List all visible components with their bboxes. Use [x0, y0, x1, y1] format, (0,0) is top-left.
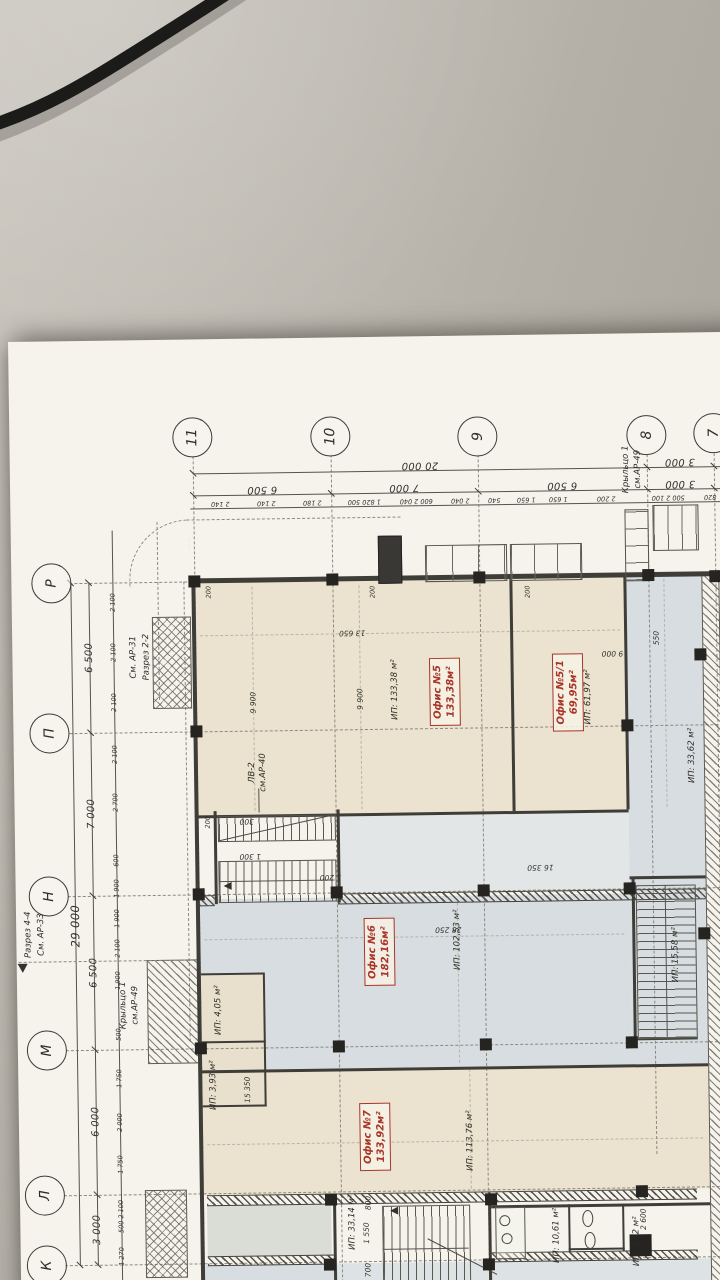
room-area: ИП: 113,76 м²	[465, 1110, 476, 1171]
column	[698, 927, 710, 939]
dim-left-small: 1 900	[113, 879, 121, 898]
column	[333, 1040, 345, 1052]
axis-bubble-R: Р	[31, 563, 72, 604]
office-name: Офис №6	[367, 925, 380, 979]
column	[331, 886, 343, 898]
wc-fixture	[582, 1210, 593, 1227]
dim-inner: 9 900	[355, 688, 364, 710]
entrance-steps	[510, 543, 583, 581]
axis-bubble-K: К	[27, 1245, 68, 1280]
porch-note: Крыльцо 1	[118, 982, 129, 1030]
column	[325, 1193, 337, 1205]
column	[642, 569, 654, 581]
office-6-label: Офис №6 182,16м²	[364, 918, 396, 986]
dim-top: 20 000	[401, 460, 438, 472]
dim-left-overall: 29 000	[68, 905, 83, 948]
office-name: Офис №5	[432, 665, 445, 719]
office-name: Офис №7	[362, 1110, 375, 1164]
axis-label: П	[41, 728, 57, 739]
axis-label: Р	[43, 579, 59, 588]
dim-inner: 1 300	[239, 852, 261, 861]
room-area: ИП: 3,93 м²	[208, 1060, 219, 1110]
axis-label: Л	[37, 1190, 53, 1201]
ref-note: См. АР-31	[128, 636, 139, 679]
dim-top: 6 500	[547, 480, 577, 491]
dim-left-small: 2 700	[111, 793, 119, 812]
dim-offset: 200	[204, 586, 212, 599]
dim-top-small: 2 180	[303, 499, 322, 507]
column	[188, 575, 200, 587]
porch-bottom-left	[145, 1190, 188, 1279]
axis-label: М	[39, 1044, 55, 1056]
section-note-2-2: Разрез 2-2	[141, 634, 152, 681]
office-7-label: Офис №7 133,92м²	[359, 1103, 391, 1171]
dim-inner: 550	[652, 631, 661, 645]
dim-inner: 9 900	[248, 692, 257, 714]
dim-top: 3 000	[665, 478, 695, 489]
entrance-shaft	[378, 536, 403, 584]
axis-bubble-L: Л	[25, 1175, 66, 1216]
axis-bubble-9: 9	[457, 416, 498, 457]
room-area: ИП: 15,58 м²	[670, 927, 681, 982]
column	[326, 573, 338, 585]
column	[694, 648, 706, 660]
dim-inner: 28 250	[435, 925, 461, 934]
dim-left-small: 2 100	[111, 745, 119, 764]
office-area: 133,38м²	[445, 666, 458, 717]
dim-left-small: 1 900	[113, 909, 121, 928]
dim-inner: 13 650	[339, 629, 365, 638]
dim-offset: 200	[204, 816, 212, 829]
office-7-floor	[201, 1063, 710, 1195]
column	[478, 884, 490, 896]
room-area: ИП: 133,38 м²	[389, 659, 400, 720]
dim-left-small: 1 750	[115, 1069, 123, 1088]
shaft	[495, 1207, 526, 1259]
room-area: ИП: 33,62 м²	[686, 728, 697, 783]
dim-top: 3 000	[665, 456, 695, 467]
dim-top-small: 1 650	[549, 495, 568, 503]
column	[626, 1036, 638, 1048]
dim-left-small: 1 750	[116, 1155, 124, 1174]
dim-left-small: 2 000	[116, 1113, 124, 1132]
dim-top-small: 1 650	[517, 496, 536, 504]
column	[636, 1185, 648, 1197]
axis-label: 8	[638, 431, 654, 440]
stair-bottom-arrow	[386, 1207, 398, 1215]
dim-top: 6 500	[247, 484, 277, 495]
axis-bubble-M: М	[27, 1030, 68, 1071]
shaft-circle	[499, 1215, 510, 1226]
dim-top-small: 2 040	[451, 497, 470, 505]
column	[709, 570, 720, 582]
wall-band	[208, 1255, 336, 1267]
porch-left	[147, 959, 200, 1064]
drawing-sheet: 11 10 9 8 7 Р П Н М Л К 20 000 3 000 6 5…	[8, 330, 720, 1280]
office-5-1-label: Офис №5/1 69,95м²	[552, 653, 584, 732]
wall-wc	[568, 1204, 571, 1252]
axis-label: К	[39, 1260, 55, 1270]
dim-inner: 1 200	[320, 873, 342, 882]
dim-top-small: 820	[704, 493, 717, 501]
stair-note-ref: см.АР-40	[258, 753, 269, 792]
dim-top-small: 1 820 500	[348, 498, 381, 506]
dim-left: 7 000	[86, 799, 97, 829]
room-area: ИП: 102,53 м²	[452, 909, 463, 970]
photo-of-floor-plan: 11 10 9 8 7 Р П Н М Л К 20 000 3 000 6 5…	[0, 0, 720, 1280]
axis-label: 11	[184, 428, 200, 446]
column	[195, 1042, 207, 1054]
column	[193, 888, 205, 900]
dim-offset: 200	[368, 586, 376, 599]
office-area: 69,95м²	[568, 670, 581, 714]
room-area: ИП: 61,97 м²	[583, 669, 594, 724]
column	[483, 1258, 495, 1270]
room-area: ИП: 4,05 м²	[213, 985, 224, 1035]
axis-label: 7	[705, 429, 720, 438]
column	[190, 725, 202, 737]
axis-bubble-10: 10	[310, 416, 351, 457]
porch-note-top-ref: см.АР-49	[633, 450, 644, 489]
hall-floor	[340, 812, 630, 894]
dim-left-small: 2 100	[109, 643, 117, 662]
wc-fixture	[584, 1232, 595, 1249]
column	[473, 571, 485, 583]
stair-lobby-floor	[207, 1204, 332, 1258]
dim-top-small: 2 140	[257, 499, 276, 507]
axis-label: 10	[322, 427, 338, 445]
ref-note: См. АР-33	[36, 913, 47, 956]
dim-left-small: 1 270	[118, 1247, 126, 1266]
dim-line-left-2	[88, 583, 99, 1265]
dim-left-small: 500	[115, 1028, 123, 1041]
ramp-top-left	[152, 616, 192, 709]
column	[485, 1193, 497, 1205]
dim-top: 7 000	[389, 482, 419, 493]
axis-label: Н	[41, 891, 57, 902]
stair-note: ЛВ-2	[247, 762, 257, 783]
wall-wc	[622, 1203, 625, 1251]
dim-inner: 800	[363, 1196, 372, 1210]
dim-inner: 2 600	[639, 1208, 648, 1230]
dim-inner: 300	[239, 817, 253, 826]
dim-left: 6 000	[90, 1107, 101, 1137]
dim-left: 6 500	[84, 643, 95, 673]
column	[480, 1038, 492, 1050]
office-5-label: Офис №5 133,38м²	[429, 658, 461, 726]
dim-left-small: 500 2 100	[117, 1200, 125, 1233]
porch-dashed-line	[186, 517, 400, 521]
dim-top-small: 600 2 040	[400, 497, 433, 505]
office-name: Офис №5/1	[555, 660, 568, 725]
dim-inner: 15 350	[243, 1077, 252, 1103]
porch-top-right	[652, 504, 699, 551]
column	[624, 882, 636, 894]
dim-left-small: 600	[112, 854, 120, 867]
dim-top-small: 2 140	[211, 500, 230, 508]
dim-inner: 700	[363, 1263, 372, 1277]
dim-left: 3 000	[92, 1215, 103, 1245]
axis-bubble-P: П	[29, 713, 70, 754]
column	[324, 1259, 336, 1271]
section-note-4-4: Разрез 4-4	[23, 911, 34, 958]
entrance-steps	[425, 544, 508, 582]
porch-note-top: Крыльцо 1	[621, 445, 632, 493]
dim-inner: 1 550	[362, 1222, 371, 1244]
dim-left: 6 500	[88, 958, 99, 988]
axis-bubble-11: 11	[172, 417, 213, 458]
dim-top-small: 540	[488, 496, 501, 504]
room-area: ИП: 10,61 м²	[551, 1208, 562, 1263]
dim-left-small: 2 100	[109, 593, 117, 612]
room-area: ИП: 33,14 м²	[347, 1195, 358, 1250]
dim-offset: 200	[523, 586, 531, 599]
axis-label: 9	[469, 432, 485, 441]
porch-note-ref: см.АР-49	[130, 986, 141, 1025]
dim-top-small: 500 2 100	[652, 494, 685, 502]
porch-arc	[129, 519, 191, 587]
column	[621, 719, 633, 731]
axis-bubble-N: Н	[28, 876, 69, 917]
section-4-4-arrow	[18, 964, 28, 978]
cable-shadow	[0, 0, 252, 136]
cable	[0, 0, 320, 190]
dim-top-small: 2 200	[597, 495, 616, 503]
stair-mid-arrow	[220, 882, 232, 890]
dim-inner: 16 350	[527, 863, 553, 872]
office-area: 182,16м²	[379, 926, 392, 977]
shaft-circle	[501, 1233, 512, 1244]
dim-left-small: 2 100	[110, 693, 118, 712]
dim-inner: 9 000	[602, 649, 624, 658]
dim-left-small: 2 100	[113, 939, 121, 958]
axis-bubble-7: 7	[693, 413, 720, 454]
stair-bottom-flights	[382, 1205, 471, 1280]
office-area: 133,92м²	[375, 1111, 388, 1162]
